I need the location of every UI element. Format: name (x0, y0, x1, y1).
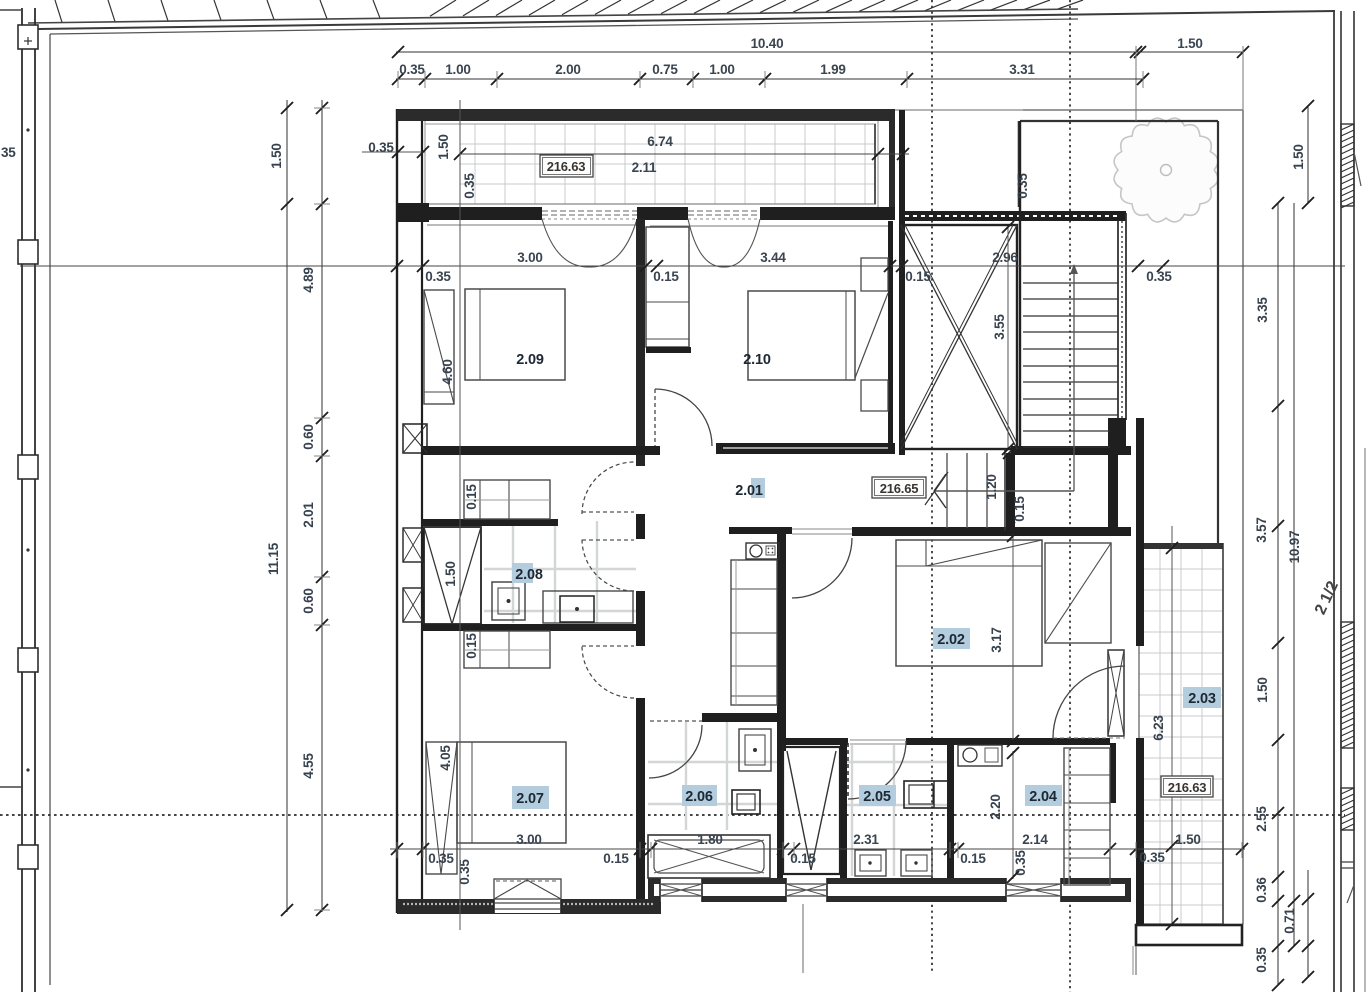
svg-text:2.09: 2.09 (516, 352, 544, 368)
svg-text:0.15: 0.15 (653, 269, 679, 284)
svg-text:0.15: 0.15 (960, 851, 986, 866)
svg-text:0.35: 0.35 (428, 851, 454, 866)
svg-text:2.02: 2.02 (937, 632, 965, 648)
svg-text:2.07: 2.07 (516, 791, 544, 807)
svg-text:2.20: 2.20 (988, 794, 1003, 819)
svg-text:4.55: 4.55 (301, 753, 316, 779)
svg-text:2.00: 2.00 (555, 62, 580, 77)
svg-text:0.35: 0.35 (1139, 850, 1165, 865)
svg-text:0.35: 0.35 (1013, 850, 1028, 876)
svg-text:1.80: 1.80 (697, 832, 722, 847)
svg-text:0.35: 0.35 (462, 173, 477, 199)
svg-text:0.15: 0.15 (905, 269, 931, 284)
svg-text:2.01: 2.01 (301, 502, 316, 528)
svg-text:0.15: 0.15 (1012, 496, 1027, 522)
svg-text:216.65: 216.65 (880, 481, 919, 496)
svg-text:1.00: 1.00 (709, 62, 734, 77)
svg-text:2.14: 2.14 (1022, 832, 1048, 847)
svg-text:1.50: 1.50 (1175, 832, 1200, 847)
svg-text:6.74: 6.74 (647, 134, 673, 149)
svg-text:3.00: 3.00 (516, 832, 541, 847)
svg-text:216.63: 216.63 (547, 159, 586, 174)
svg-text:1.50: 1.50 (436, 134, 451, 159)
svg-text:0.35: 0.35 (399, 62, 425, 77)
svg-text:3.00: 3.00 (517, 250, 542, 265)
svg-text:216.63: 216.63 (1168, 780, 1207, 795)
svg-text:0.35: 0.35 (368, 140, 394, 155)
svg-text:1.50: 1.50 (1255, 677, 1270, 702)
svg-text:1.50: 1.50 (1177, 36, 1202, 51)
svg-text:1.20: 1.20 (984, 474, 999, 499)
svg-text:11.15: 11.15 (266, 542, 281, 575)
svg-text:0.71: 0.71 (1282, 908, 1297, 934)
svg-text:0.35: 0.35 (1254, 947, 1269, 973)
svg-text:2.11: 2.11 (632, 160, 657, 175)
svg-text:10.40: 10.40 (751, 36, 784, 51)
svg-text:1.00: 1.00 (445, 62, 470, 77)
svg-text:4.89: 4.89 (301, 267, 316, 292)
svg-text:1.50: 1.50 (443, 561, 458, 586)
svg-text:2.01: 2.01 (735, 483, 763, 499)
svg-text:0.35: 0.35 (425, 269, 451, 284)
svg-text:0.60: 0.60 (301, 424, 316, 449)
svg-text:1.99: 1.99 (820, 62, 845, 77)
svg-text:2.05: 2.05 (863, 789, 891, 805)
svg-text:0.36: 0.36 (1254, 877, 1269, 903)
svg-text:0.15: 0.15 (603, 851, 629, 866)
svg-text:3.31: 3.31 (1009, 62, 1035, 77)
svg-text:0.15: 0.15 (464, 484, 479, 510)
svg-text:35: 35 (1, 145, 16, 160)
svg-text:2.10: 2.10 (743, 352, 771, 368)
svg-text:0.35: 0.35 (1146, 269, 1172, 284)
svg-text:10.97: 10.97 (1287, 531, 1302, 564)
svg-text:0.60: 0.60 (301, 588, 316, 613)
svg-text:0.35: 0.35 (1015, 173, 1030, 199)
svg-text:2.96: 2.96 (992, 250, 1018, 265)
svg-text:0.35: 0.35 (457, 859, 472, 885)
svg-text:3.17: 3.17 (989, 627, 1004, 652)
svg-text:0.15: 0.15 (464, 633, 479, 659)
svg-text:2.08: 2.08 (515, 567, 543, 583)
svg-text:1.50: 1.50 (269, 143, 284, 168)
svg-text:2.03: 2.03 (1188, 691, 1216, 707)
svg-text:0.75: 0.75 (652, 62, 678, 77)
svg-text:2.55: 2.55 (1254, 806, 1269, 832)
svg-text:1.50: 1.50 (1291, 144, 1306, 169)
svg-text:4.05: 4.05 (438, 745, 453, 771)
svg-text:2.06: 2.06 (685, 789, 713, 805)
svg-text:2.04: 2.04 (1029, 789, 1057, 805)
svg-text:6.23: 6.23 (1151, 715, 1166, 741)
svg-text:3.55: 3.55 (992, 314, 1007, 340)
svg-text:3.35: 3.35 (1255, 297, 1270, 323)
svg-text:0.15: 0.15 (790, 851, 816, 866)
svg-text:3.57: 3.57 (1254, 517, 1269, 542)
svg-text:2.31: 2.31 (853, 832, 879, 847)
svg-text:4.60: 4.60 (440, 359, 455, 384)
svg-text:3.44: 3.44 (760, 250, 786, 265)
